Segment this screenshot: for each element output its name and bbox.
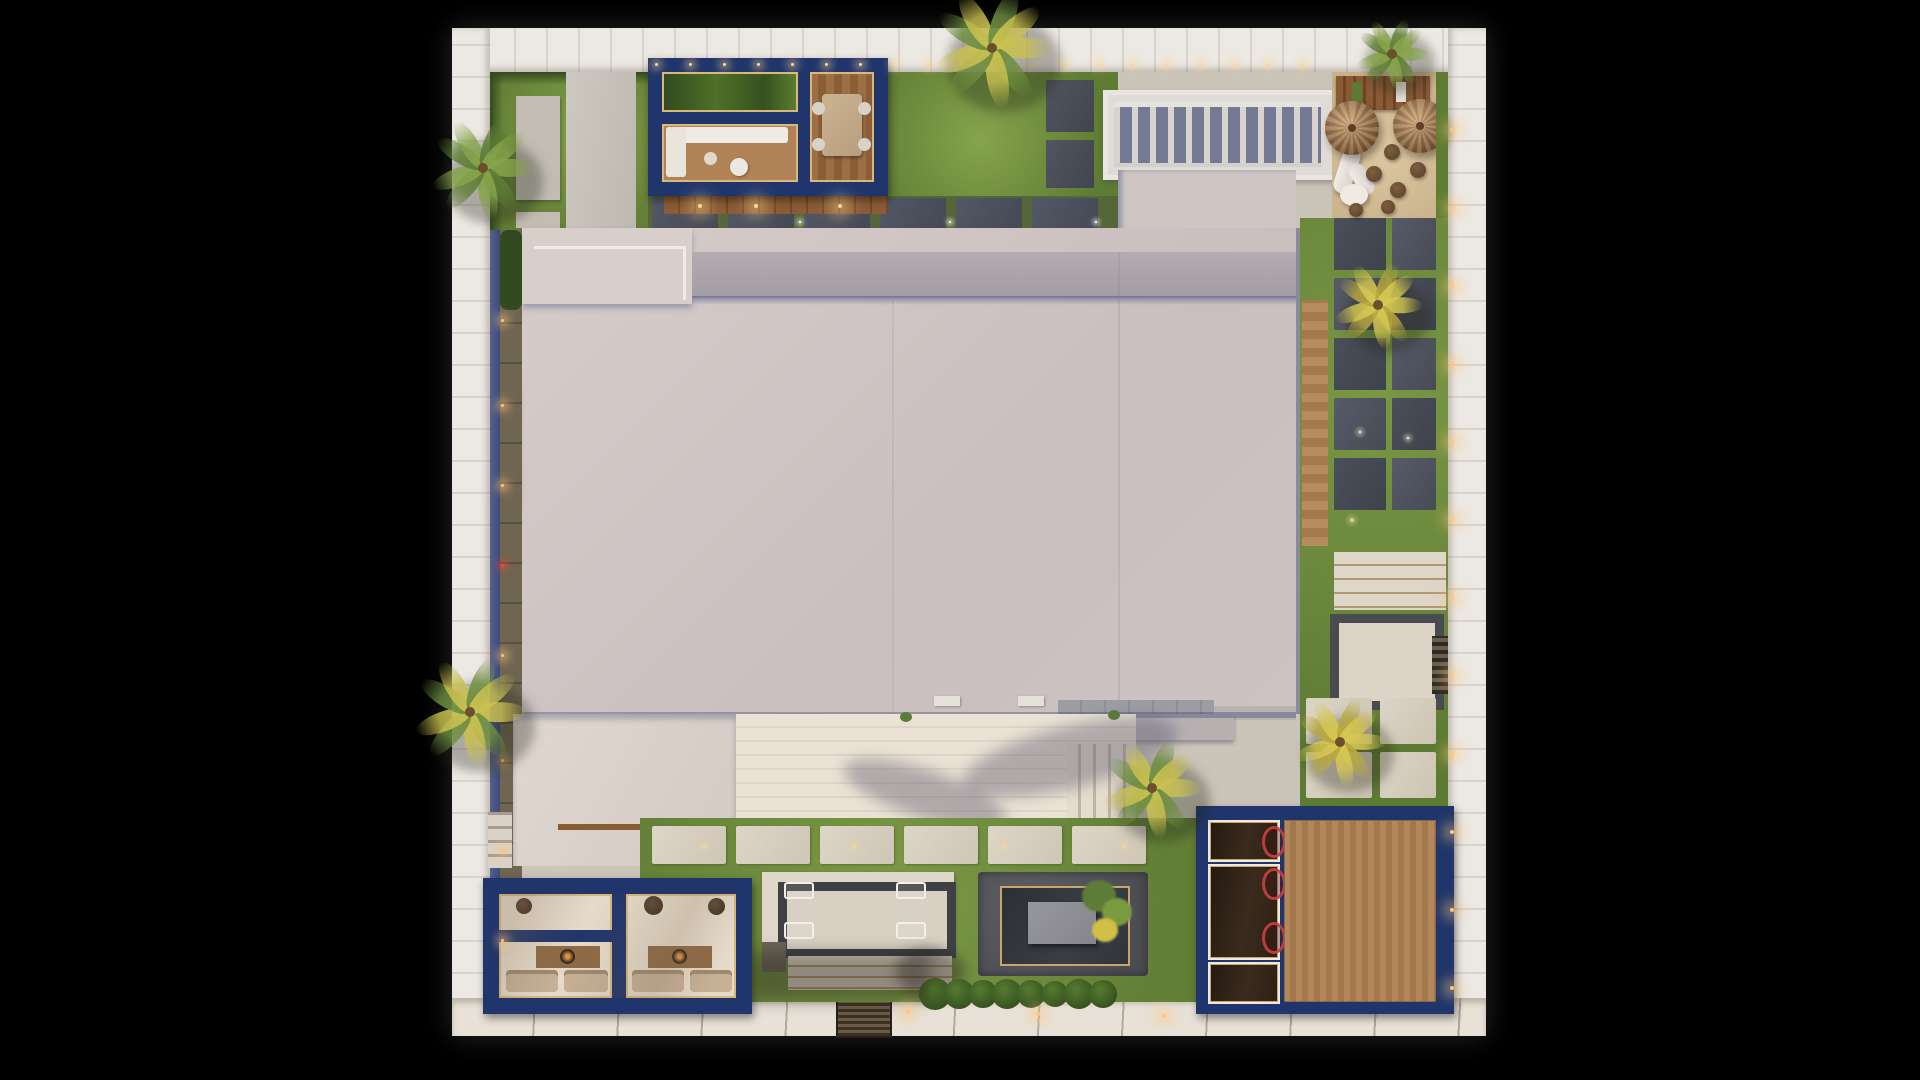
pool-lounger: [896, 882, 926, 899]
gravel-path: [566, 72, 636, 230]
palm-crown: [1335, 737, 1345, 747]
palm-tree: [1332, 259, 1424, 351]
roof-vent: [934, 696, 960, 706]
side-yard-lights: [501, 849, 504, 852]
umbrella-hub: [1348, 124, 1356, 132]
terrace-railing: [1114, 102, 1321, 167]
top-string-lights: [655, 63, 658, 66]
side-yard-lights: [501, 484, 504, 487]
pool-lounger: [784, 882, 814, 899]
stepping-pad: [1366, 166, 1382, 182]
right-wall-lights: [1450, 362, 1454, 366]
top-string-lights: [1097, 63, 1100, 66]
right-wall-lights: [1450, 752, 1454, 756]
side-yard-shrubs: [500, 230, 522, 310]
top-string-lights: [859, 63, 862, 66]
coffee-table-round: [730, 158, 748, 176]
pavilion-center-mullion: [798, 72, 810, 182]
walkway-lights: [1003, 845, 1005, 847]
side-yard-lights: [501, 404, 504, 407]
palm-crown: [1147, 783, 1157, 793]
corridor-lights: [1407, 437, 1409, 439]
palm-tree: [1100, 736, 1204, 840]
pavilion-deck-lights: [838, 204, 842, 208]
pavilion-deck-lights: [698, 204, 702, 208]
right-wall-lights: [1450, 284, 1454, 288]
top-string-lights: [1233, 63, 1236, 66]
walkway-lights: [1123, 845, 1125, 847]
top-string-lights: [1131, 63, 1134, 66]
planter-pot: [708, 898, 725, 915]
patio-slab-lights: [949, 221, 951, 223]
top-string-lights: [1165, 63, 1168, 66]
umbrella-hub: [1416, 122, 1424, 130]
roof-seam: [1118, 252, 1120, 714]
patio-slab-lights: [799, 221, 801, 223]
slate-paver: [1334, 458, 1386, 510]
pavilion-lounger: [564, 970, 608, 992]
palm-tree: [930, 0, 1054, 110]
sofa-run-left: [666, 127, 686, 177]
bottom-wall-lights: [1036, 1012, 1040, 1016]
pavilion-lounger: [632, 970, 684, 992]
coffee-table-round: [704, 152, 717, 165]
thatch-umbrella: [1325, 101, 1379, 155]
slate-paver: [1392, 458, 1436, 510]
palm-crown: [465, 707, 475, 717]
walkway-paver: [736, 826, 810, 864]
upper-roof-highlight: [683, 246, 686, 300]
north-parapet: [692, 252, 1296, 298]
pool-lounger: [896, 922, 926, 939]
drain-grate: [836, 1000, 892, 1038]
fire-bowl: [672, 949, 687, 964]
corridor-wood-strip: [1302, 300, 1328, 546]
palm-tree: [1354, 16, 1430, 92]
dining-table: [822, 94, 862, 156]
ground-shadow: [752, 952, 932, 1000]
annex-west-steps: [488, 812, 512, 868]
wall-grill: [1432, 636, 1448, 694]
upper-roof-block: [522, 228, 692, 304]
side-yard-lights: [501, 319, 504, 322]
pool-center-slab: [1028, 902, 1096, 944]
top-string-lights: [893, 63, 896, 66]
palm-tree: [1292, 694, 1388, 790]
dining-chair: [812, 138, 825, 151]
side-yard-lights: [501, 939, 504, 942]
upper-roof-highlight: [534, 246, 686, 249]
dining-chair: [858, 102, 871, 115]
palm-crown: [478, 163, 488, 173]
right-wall-lights: [1450, 518, 1454, 522]
top-string-lights: [791, 63, 794, 66]
right-wall-lights: [1450, 674, 1454, 678]
corridor-lights: [1359, 431, 1361, 433]
dining-chair: [812, 102, 825, 115]
dining-chair: [858, 138, 871, 151]
pool-lounger: [784, 922, 814, 939]
stepping-pad: [1349, 203, 1363, 217]
right-wall-lights: [1450, 830, 1454, 834]
side-yard-red-light: [501, 564, 504, 567]
right-wall-lights: [1450, 908, 1454, 912]
top-string-lights: [757, 63, 760, 66]
stepping-pad: [1410, 162, 1426, 178]
palm-crown: [987, 43, 997, 53]
slate-paver: [1334, 398, 1386, 450]
parapet-shadow: [692, 296, 1296, 305]
top-string-lights: [723, 63, 726, 66]
top-string-lights: [689, 63, 692, 66]
walkway-paver: [988, 826, 1062, 864]
pavilion-lounger: [690, 970, 732, 992]
slate-paver: [1392, 398, 1436, 450]
garage-roof-deck: [1284, 820, 1436, 1002]
right-wall-lights: [1450, 986, 1454, 990]
planter-pot: [644, 896, 663, 915]
planter-pot: [516, 898, 532, 914]
walkway-paver: [652, 826, 726, 864]
top-string-lights: [1267, 63, 1270, 66]
top-string-lights: [1301, 63, 1304, 66]
render-stage: [0, 0, 1920, 1080]
parked-car: [1262, 826, 1286, 858]
right-wall-lights: [1450, 596, 1454, 600]
water-tree-canopy: [1092, 918, 1118, 942]
palm-tree: [429, 114, 537, 222]
corridor-steps: [1334, 552, 1446, 610]
pavilion-deck-lights: [754, 204, 758, 208]
terrace-tuft: [900, 712, 912, 722]
roof-seam: [892, 300, 894, 714]
palm-crown: [1373, 300, 1383, 310]
pavilion-divider: [499, 930, 612, 942]
walkway-paver: [820, 826, 894, 864]
pavilion-lounger: [506, 970, 558, 992]
hedge-bush: [1089, 980, 1117, 1008]
walkway-lights: [853, 845, 855, 847]
walkway-paver: [904, 826, 978, 864]
patio-slab-lights: [1095, 221, 1097, 223]
top-string-lights: [1199, 63, 1202, 66]
slate-slab: [1046, 140, 1094, 188]
parked-car: [1262, 868, 1286, 900]
pavilion-mullion: [662, 112, 798, 124]
palm-tree: [412, 654, 528, 770]
stepping-pad: [1381, 200, 1395, 214]
roof-vent: [1018, 696, 1044, 706]
bottom-wall-lights: [906, 1010, 910, 1014]
top-string-lights: [825, 63, 828, 66]
playground-grass-edge: [1436, 72, 1448, 218]
corridor-lights: [1351, 519, 1353, 521]
fire-bowl: [560, 949, 575, 964]
top-string-lights: [1063, 63, 1066, 66]
bottom-wall-lights: [1162, 1014, 1166, 1018]
palm-crown: [1387, 49, 1397, 59]
stepping-pad: [1390, 182, 1406, 198]
right-wall-lights: [1450, 440, 1454, 444]
walkway-lights: [703, 845, 705, 847]
pavilion-planter-cell: [662, 72, 798, 112]
right-wall-lights: [1450, 128, 1454, 132]
parked-car: [1262, 922, 1286, 954]
right-wall-lights: [1450, 206, 1454, 210]
stepping-pad: [1384, 144, 1400, 160]
garage-bay-3: [1208, 962, 1280, 1004]
